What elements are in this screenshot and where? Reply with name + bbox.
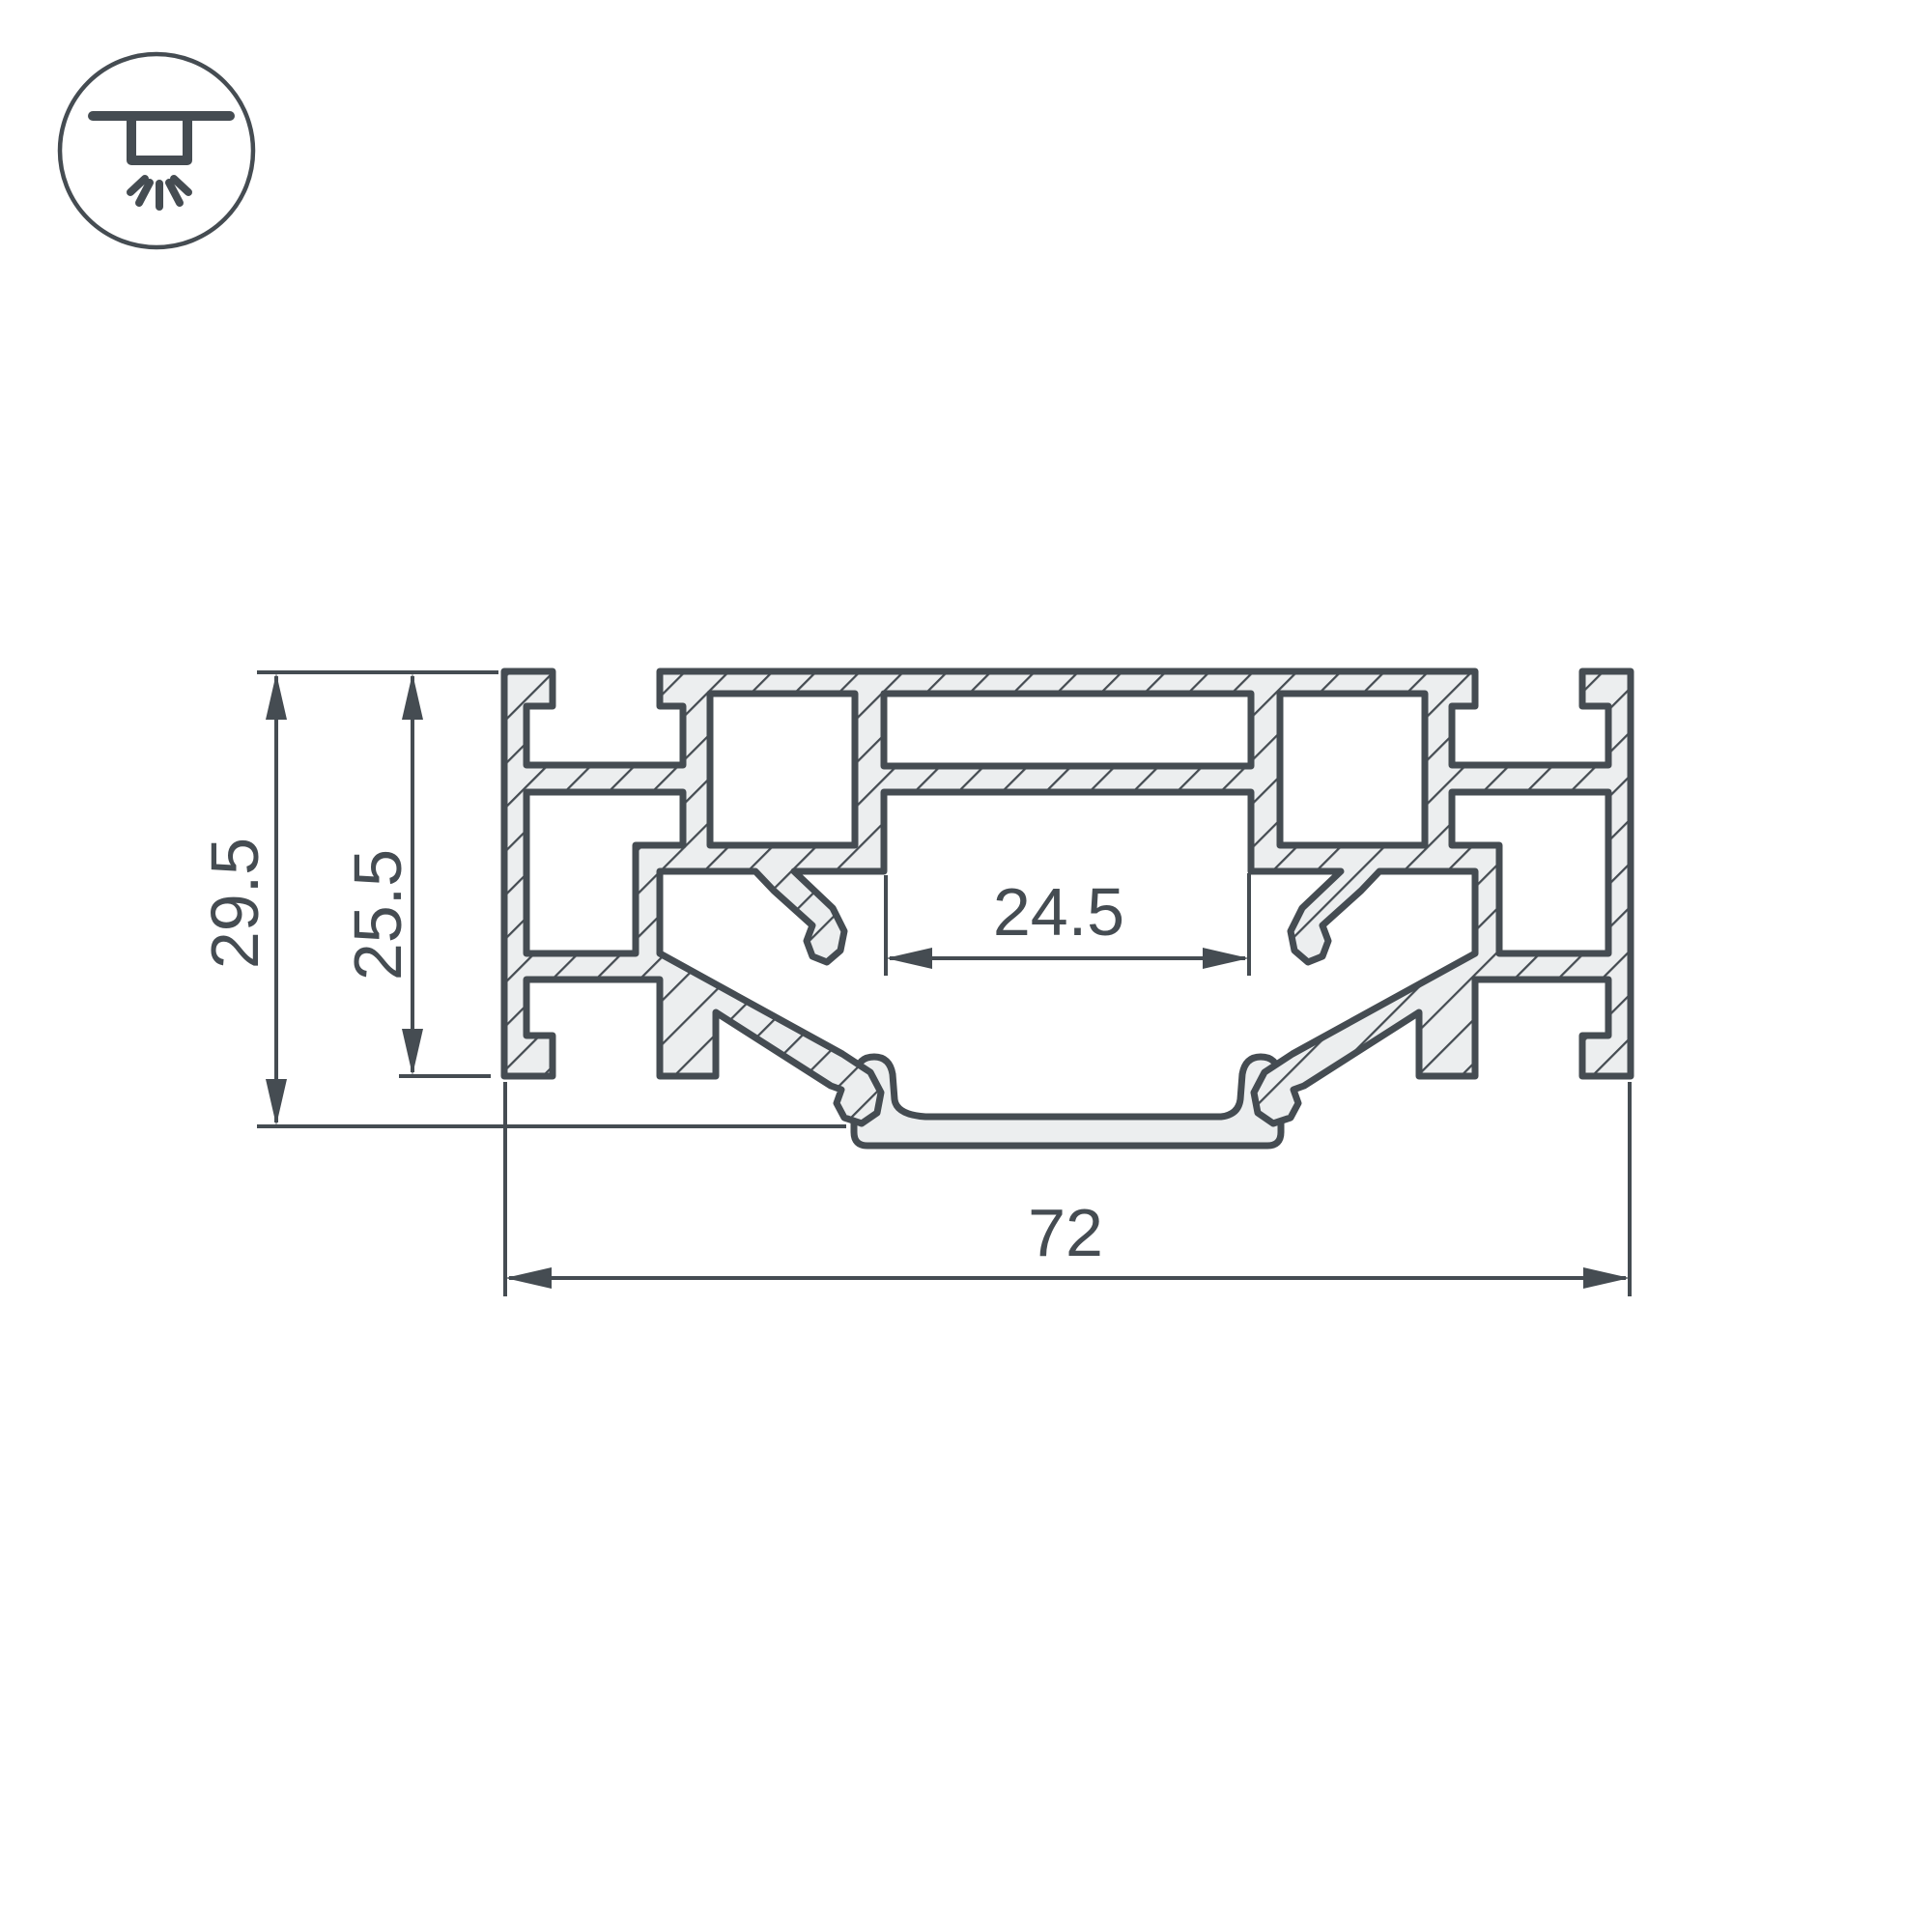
dimension-label-height-body: 25.5 bbox=[340, 849, 415, 980]
dimension-label-opening-width: 24.5 bbox=[993, 874, 1124, 950]
dimension-arrow bbox=[402, 1029, 423, 1075]
icon-fixture-box bbox=[131, 120, 187, 160]
diffuser bbox=[854, 1057, 1281, 1146]
dimension-arrow bbox=[505, 1267, 552, 1289]
profile-cross-section bbox=[257, 671, 1631, 1296]
drawing-canvas: 29.5 25.5 24.5 72 bbox=[0, 0, 1932, 1932]
dimension-arrow bbox=[886, 948, 932, 969]
dimension-arrow bbox=[1203, 948, 1249, 969]
dimension-arrow bbox=[266, 1079, 287, 1125]
icon-circle bbox=[60, 54, 253, 247]
icon-light-rays bbox=[130, 179, 188, 207]
dimension-arrow bbox=[402, 673, 423, 720]
technical-drawing: 29.5 25.5 24.5 72 bbox=[0, 0, 1932, 1932]
dimension-label-height-total: 29.5 bbox=[197, 838, 272, 969]
dimension-label-width-total: 72 bbox=[1028, 1195, 1103, 1270]
dimension-arrow bbox=[266, 673, 287, 720]
dimension-arrow bbox=[1583, 1267, 1630, 1289]
recessed-ceiling-light-icon bbox=[60, 54, 253, 247]
